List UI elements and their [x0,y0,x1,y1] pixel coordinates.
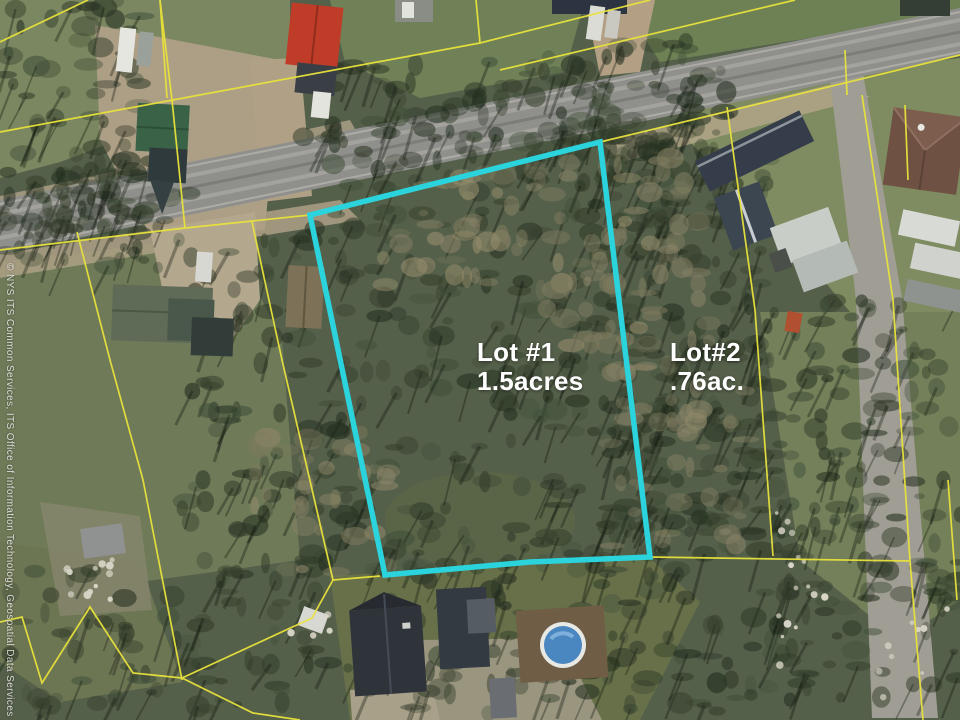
building-brown-topright [883,107,960,195]
vehicle-white-left [195,251,213,282]
lot1-label: Lot #11.5acres [477,338,584,396]
building-dark-bottom-2 [436,586,498,669]
shed-bottom-left [80,523,126,559]
lot1-name: Lot #1 [477,337,555,367]
pool-area [516,605,609,683]
vehicle-gray-bottom [489,677,517,718]
lot2-label: Lot#2.76ac. [670,338,744,396]
building-dark-bottom-main [348,590,427,697]
building-tan-center [285,265,324,329]
lot1-size: 1.5acres [477,366,584,396]
imagery-copyright-watermark: © NYS ITS Common Services, ITS Office of… [4,263,15,717]
lot2-size: .76ac. [670,366,744,396]
aerial-map-image: Lot #11.5acres Lot#2.76ac. © NYS ITS Com… [0,0,960,720]
lot2-name: Lot#2 [670,337,741,367]
